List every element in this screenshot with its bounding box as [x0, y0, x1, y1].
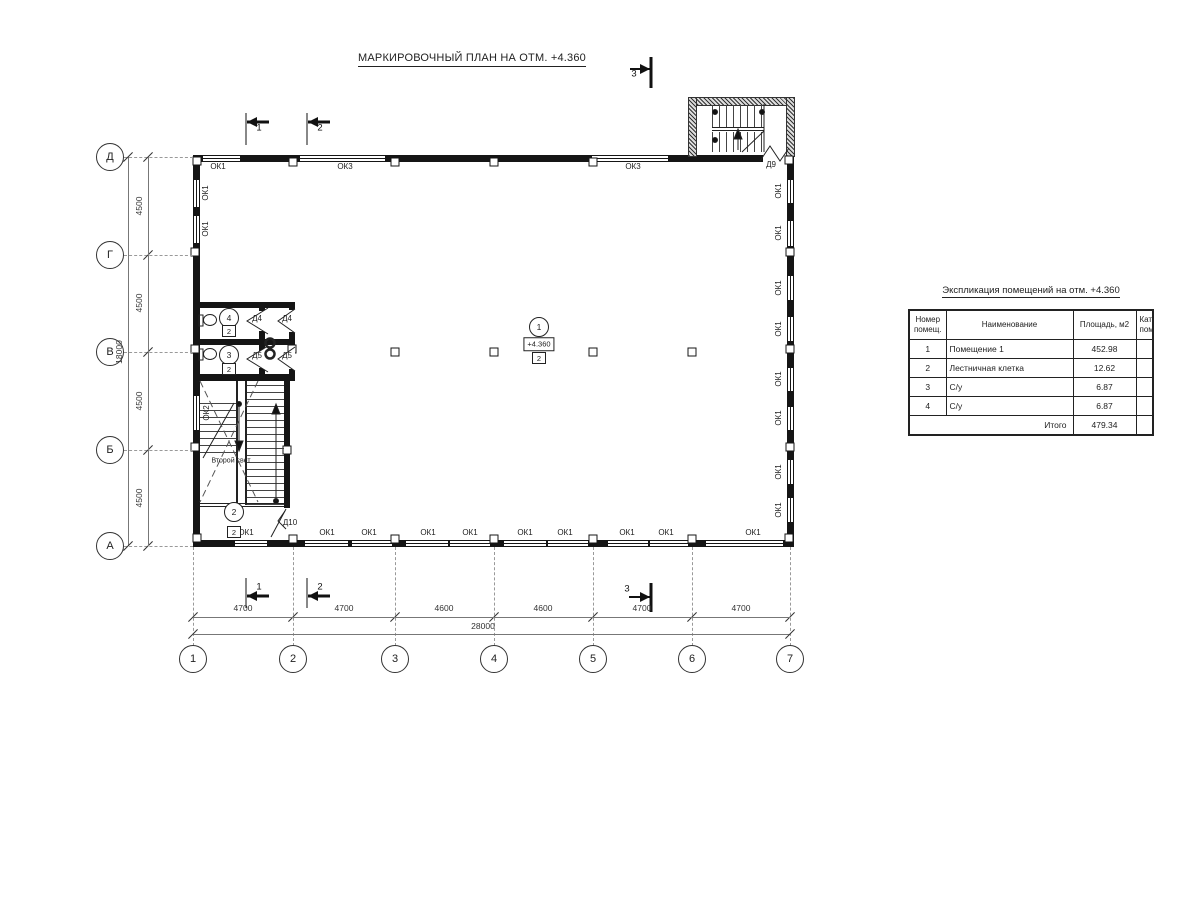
axis-line: [124, 546, 193, 547]
room-category-marker: 2: [532, 352, 546, 364]
schedule-cell: [1136, 359, 1153, 378]
section-marker-label: 1: [256, 582, 261, 593]
annex-dot: [760, 110, 765, 115]
window-label: ОК1: [775, 502, 783, 517]
dim-total-text: 18000: [114, 340, 124, 364]
schedule-cell: Помещение 1: [946, 340, 1073, 359]
wc-bowl-icon: [204, 315, 217, 326]
schedule-cell: 3: [909, 378, 946, 397]
section-marker-label: 2: [317, 582, 322, 593]
window-label: ОК3: [625, 163, 640, 171]
schedule-cell: С/у: [946, 378, 1073, 397]
schedule-cell: С/у: [946, 397, 1073, 416]
annex-arrowhead: [734, 129, 742, 139]
schedule-cell: 12.62: [1073, 359, 1136, 378]
axis-line: [293, 547, 294, 646]
axis-line: [124, 450, 193, 451]
window-label: ОК1: [619, 529, 634, 537]
schedule-table: Номер помещ.НаименованиеПлощадь, м2Кат. …: [908, 309, 1154, 436]
window-label: ОК1: [210, 163, 225, 171]
drawing-canvas: МАРКИРОВОЧНЫЙ ПЛАН НА ОТМ. +4.360: [0, 0, 1200, 900]
stair-arrowhead-up: [272, 404, 280, 414]
schedule-total-label: Итого: [909, 416, 1073, 436]
door-label: Д4: [282, 315, 292, 323]
window-label: ОК1: [775, 321, 783, 336]
elevation-mark: +4.360: [523, 337, 554, 351]
window-label: ОК1: [745, 529, 760, 537]
dim-text: 4700: [633, 603, 652, 613]
section-marker-label: 3: [631, 69, 636, 80]
dim-text: 4500: [134, 197, 144, 216]
window-label: ОК1: [775, 464, 783, 479]
axis-circle: 5: [579, 645, 607, 673]
window-label: ОК2: [203, 405, 211, 420]
axis-circle: 3: [381, 645, 409, 673]
door-label: Д4: [252, 315, 262, 323]
axis-circle: Б: [96, 436, 124, 464]
room-number-marker: 1: [529, 317, 549, 337]
dim-line: [128, 157, 129, 546]
dim-text: 4700: [335, 603, 354, 613]
section-marker-label: 1: [256, 123, 261, 134]
schedule-total-value: 479.34: [1073, 416, 1136, 436]
dim-line: [148, 157, 149, 546]
dim-text: 4500: [134, 489, 144, 508]
schedule-title: Экспликация помещений на отм. +4.360: [908, 285, 1154, 296]
window-label: ОК1: [319, 529, 334, 537]
axis-line: [124, 352, 193, 353]
window-label: ОК1: [202, 221, 210, 236]
dim-text: 4500: [134, 392, 144, 411]
section-marker-label: 2: [317, 123, 322, 134]
axis-line: [593, 547, 594, 646]
room-category-marker: 2: [222, 363, 236, 375]
dim-line: [193, 634, 790, 635]
schedule-cell: [1136, 340, 1153, 359]
dim-text: 4700: [234, 603, 253, 613]
annex-dot: [713, 138, 718, 143]
window-label: ОК1: [775, 225, 783, 240]
axis-line: [494, 547, 495, 646]
door-label: Д9: [766, 161, 776, 169]
schedule-cell: 4: [909, 397, 946, 416]
annex-break-line: [742, 131, 764, 152]
window-label: ОК1: [420, 529, 435, 537]
room-number-marker: 2: [224, 502, 244, 522]
axis-circle: 4: [480, 645, 508, 673]
window-label: ОК1: [517, 529, 532, 537]
schedule-cell: 452.98: [1073, 340, 1136, 359]
window-label: ОК3: [337, 163, 352, 171]
schedule-cell: 6.87: [1073, 378, 1136, 397]
room-category-marker: 2: [222, 325, 236, 337]
schedule-header-cell: Номер помещ.: [909, 310, 946, 340]
wc-bowl-icon: [204, 349, 217, 360]
schedule-cell: Лестничная клетка: [946, 359, 1073, 378]
schedule-cell: 1: [909, 340, 946, 359]
schedule-header-cell: Наименование: [946, 310, 1073, 340]
schedule-cell: [1136, 397, 1153, 416]
axis-line: [395, 547, 396, 646]
window-label: ОК1: [775, 410, 783, 425]
axis-circle: А: [96, 532, 124, 560]
window-label: ОК1: [361, 529, 376, 537]
wc-tank-icon: [199, 349, 203, 360]
schedule-header-cell: Кат. пом.: [1136, 310, 1153, 340]
room-number-marker: 3: [219, 345, 239, 365]
axis-circle: Г: [96, 241, 124, 269]
window-label: ОК1: [775, 371, 783, 386]
dim-total-text: 28000: [471, 621, 495, 631]
dim-text: 4700: [732, 603, 751, 613]
sink-icon: [266, 339, 275, 348]
room-schedule: Экспликация помещений на отм. +4.360 Ном…: [908, 285, 1154, 436]
schedule-cell: 6.87: [1073, 397, 1136, 416]
door-label: Д10: [283, 519, 297, 527]
window-label: ОК1: [775, 183, 783, 198]
axis-line: [124, 157, 193, 158]
window-label: ОК1: [462, 529, 477, 537]
axis-circle: 7: [776, 645, 804, 673]
door-label: Д5: [252, 352, 262, 360]
second-light-label: Второй свет: [211, 458, 250, 465]
schedule-cell: 2: [909, 359, 946, 378]
room-category-marker: 2: [227, 526, 241, 538]
window-label: ОК1: [658, 529, 673, 537]
axis-circle: Д: [96, 143, 124, 171]
door-label: Д5: [282, 352, 292, 360]
stair-arrowhead-down: [235, 441, 243, 451]
schedule-cell: [1136, 378, 1153, 397]
window-label: ОК1: [557, 529, 572, 537]
window-label: ОК1: [775, 280, 783, 295]
axis-line: [692, 547, 693, 646]
dim-line: [193, 617, 790, 618]
window-label: ОК1: [202, 185, 210, 200]
schedule-header-cell: Площадь, м2: [1073, 310, 1136, 340]
axis-circle: 6: [678, 645, 706, 673]
axis-circle: 1: [179, 645, 207, 673]
axis-circle: 2: [279, 645, 307, 673]
schedule-cell: [1136, 416, 1153, 436]
dim-text: 4600: [435, 603, 454, 613]
dim-text: 4500: [134, 294, 144, 313]
annex-dot: [713, 110, 718, 115]
axis-line: [124, 255, 193, 256]
dim-text: 4600: [534, 603, 553, 613]
wc-tank-icon: [199, 315, 203, 326]
section-marker-label: 3: [624, 584, 629, 595]
